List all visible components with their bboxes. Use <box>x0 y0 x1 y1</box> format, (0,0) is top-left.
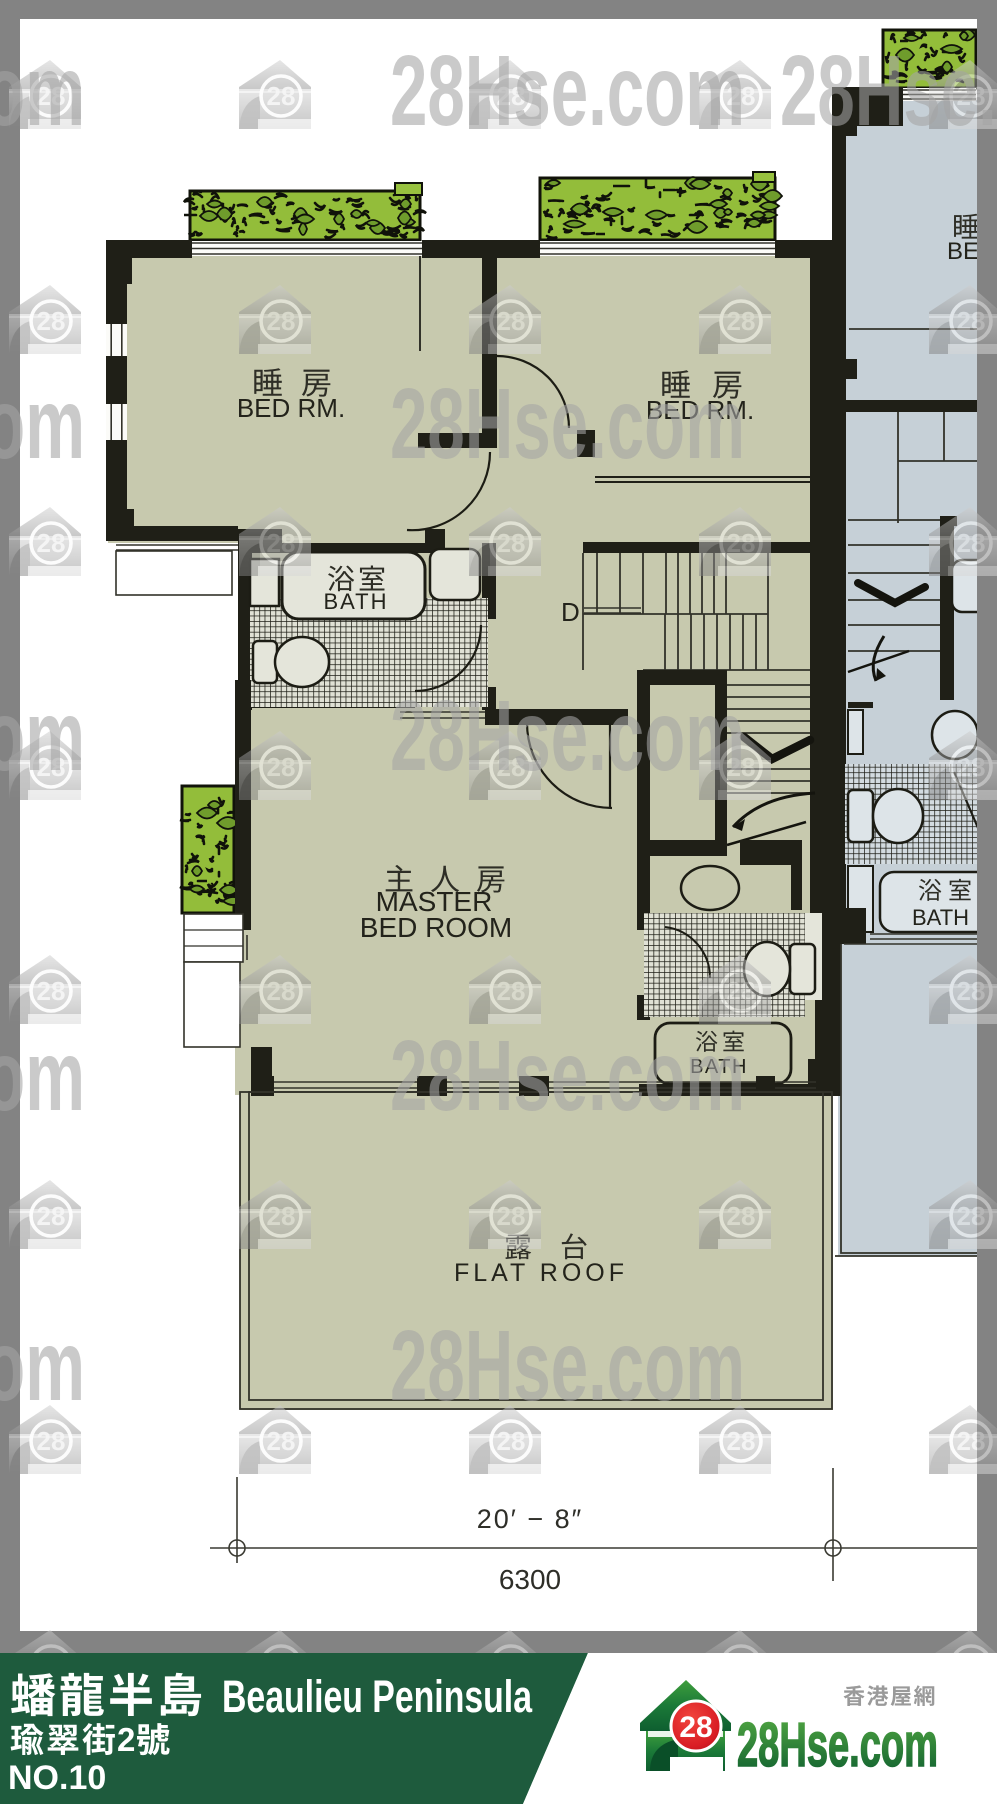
svg-text:28: 28 <box>957 1201 986 1231</box>
svg-text:28Hse.com: 28Hse.com <box>390 680 745 792</box>
svg-text:28Hse.com: 28Hse.com <box>0 368 85 480</box>
svg-text:28Hse.com: 28Hse.com <box>0 1310 85 1422</box>
svg-text:6300: 6300 <box>499 1564 561 1595</box>
svg-text:28Hse.com: 28Hse.com <box>737 1711 938 1780</box>
svg-text:FLAT ROOF: FLAT ROOF <box>454 1259 628 1287</box>
svg-text:28: 28 <box>37 976 66 1006</box>
svg-text:28: 28 <box>267 306 296 336</box>
svg-text:28: 28 <box>37 1426 66 1456</box>
svg-text:28: 28 <box>37 1201 66 1231</box>
svg-text:28: 28 <box>727 1201 756 1231</box>
svg-text:28: 28 <box>267 1201 296 1231</box>
svg-text:NO.10: NO.10 <box>8 1759 106 1797</box>
svg-text:28: 28 <box>957 752 986 782</box>
svg-text:28: 28 <box>497 528 526 558</box>
svg-text:28Hse.com: 28Hse.com <box>0 35 85 147</box>
svg-text:28Hse.com: 28Hse.com <box>780 35 997 147</box>
svg-text:28Hse.com: 28Hse.com <box>390 1310 745 1422</box>
svg-text:28Hse.com: 28Hse.com <box>0 1020 85 1132</box>
svg-text:28: 28 <box>957 1426 986 1456</box>
svg-text:Beaulieu Peninsula: Beaulieu Peninsula <box>222 1671 533 1722</box>
svg-text:D: D <box>561 597 580 627</box>
svg-text:28: 28 <box>37 528 66 558</box>
svg-text:28: 28 <box>37 306 66 336</box>
svg-text:28: 28 <box>957 306 986 336</box>
svg-text:28: 28 <box>267 528 296 558</box>
svg-text:BATH: BATH <box>912 905 969 930</box>
svg-text:20′ − 8″: 20′ − 8″ <box>477 1504 583 1534</box>
svg-text:2: 2 <box>117 1721 135 1758</box>
svg-text:28: 28 <box>267 752 296 782</box>
svg-text:28: 28 <box>957 976 986 1006</box>
svg-text:28: 28 <box>497 306 526 336</box>
svg-text:28Hse.com: 28Hse.com <box>390 35 745 147</box>
svg-text:28: 28 <box>497 1201 526 1231</box>
svg-text:28Hse.com: 28Hse.com <box>0 680 85 792</box>
svg-text:28: 28 <box>727 528 756 558</box>
svg-text:28: 28 <box>727 976 756 1006</box>
svg-text:28: 28 <box>497 1426 526 1456</box>
svg-text:BED ROOM: BED ROOM <box>360 912 512 943</box>
svg-text:28: 28 <box>727 1426 756 1456</box>
svg-text:BATH: BATH <box>323 589 388 614</box>
svg-text:28Hse.com: 28Hse.com <box>390 368 745 480</box>
svg-text:28Hse.com: 28Hse.com <box>390 1020 745 1132</box>
svg-text:28: 28 <box>267 976 296 1006</box>
svg-text:28: 28 <box>497 976 526 1006</box>
svg-text:28: 28 <box>957 528 986 558</box>
svg-text:28: 28 <box>727 306 756 336</box>
svg-text:28: 28 <box>267 81 296 111</box>
svg-text:28: 28 <box>679 1711 712 1744</box>
svg-text:BED RM.: BED RM. <box>237 393 345 423</box>
svg-text:28: 28 <box>267 1426 296 1456</box>
